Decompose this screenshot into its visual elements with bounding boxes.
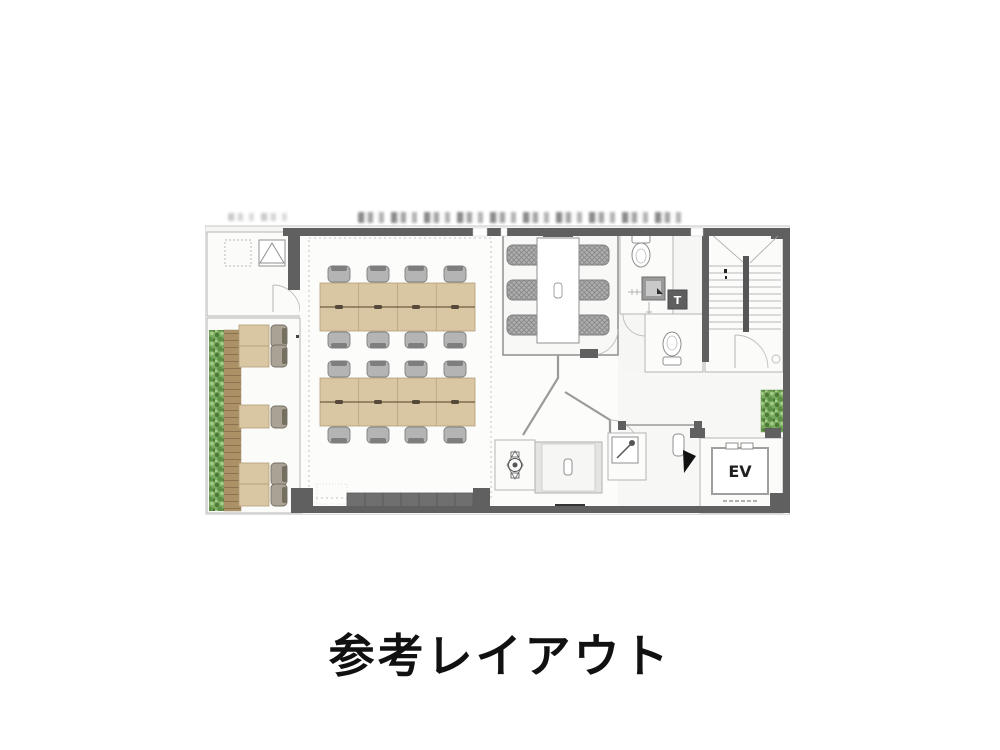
toilet-upper [620,232,673,314]
chair-symbol [367,361,389,377]
meeting-room [503,231,618,355]
planter-right [761,390,785,432]
elevator-door-mark [741,443,753,449]
chair-symbol [405,332,427,348]
sink-unit [642,277,665,300]
stair-arrow-mark [725,276,727,279]
chair-symbol [367,427,389,443]
desk-island-2 [320,378,475,426]
desk-island-1 [320,283,475,331]
hatch-symbol [259,240,285,266]
chair-symbol [507,245,541,265]
terrace-equipment-room [207,232,302,316]
meeting-table [537,238,579,343]
chair-symbol [271,484,287,506]
planting-strip [209,330,224,511]
counter-desks [239,325,269,506]
chair-symbol [405,427,427,443]
chair-symbol [575,280,609,300]
chair-symbol [328,361,350,377]
chair-symbol [507,280,541,300]
elevator-door-mark [726,443,738,449]
stair-divider-wall [743,256,749,332]
balcony-window-counter [207,318,302,513]
chair-symbol [444,332,466,348]
caption-text: 参考レイアウト [0,620,1000,686]
toilet-symbol [632,235,650,267]
chair-symbol [271,406,287,428]
chair-symbol [328,427,350,443]
chair-symbol [271,463,287,485]
utility-box-label: T [674,294,682,307]
wood-deck-strip [224,330,241,511]
chair-symbol [575,315,609,335]
chair-symbol [271,345,287,367]
toilet-symbol [663,332,681,365]
floor-plan-drawing: T [205,222,790,515]
window-gap [691,228,703,236]
chair-symbol [507,315,541,335]
chair-symbol [367,266,389,282]
stair-arrow-mark [724,269,727,273]
elevator-label: EV [728,462,752,481]
chair-symbol [271,325,287,347]
chair-symbol [405,361,427,377]
chair-symbol [444,361,466,377]
chair-symbol [367,332,389,348]
plan-marker-dot [296,335,299,338]
chair-symbol [405,266,427,282]
utility-box: T [668,290,687,309]
shower-head [629,440,635,446]
shower-room [608,433,646,480]
chair-symbol [575,245,609,265]
chair-symbol [328,266,350,282]
floor-plan-image: T [205,222,790,515]
pantry-sink [564,459,572,475]
hall-sink [673,434,684,456]
stairwell [702,230,783,372]
pantry-fixture-room [495,440,535,490]
window-gap [473,228,487,236]
cropped-text-fragment-left [228,213,294,221]
screenshot-canvas: T [0,0,1000,750]
chair-symbol [444,266,466,282]
window-gap [501,228,507,236]
chair-symbol [444,427,466,443]
counter-chairs [271,325,287,506]
chair-symbol [328,332,350,348]
